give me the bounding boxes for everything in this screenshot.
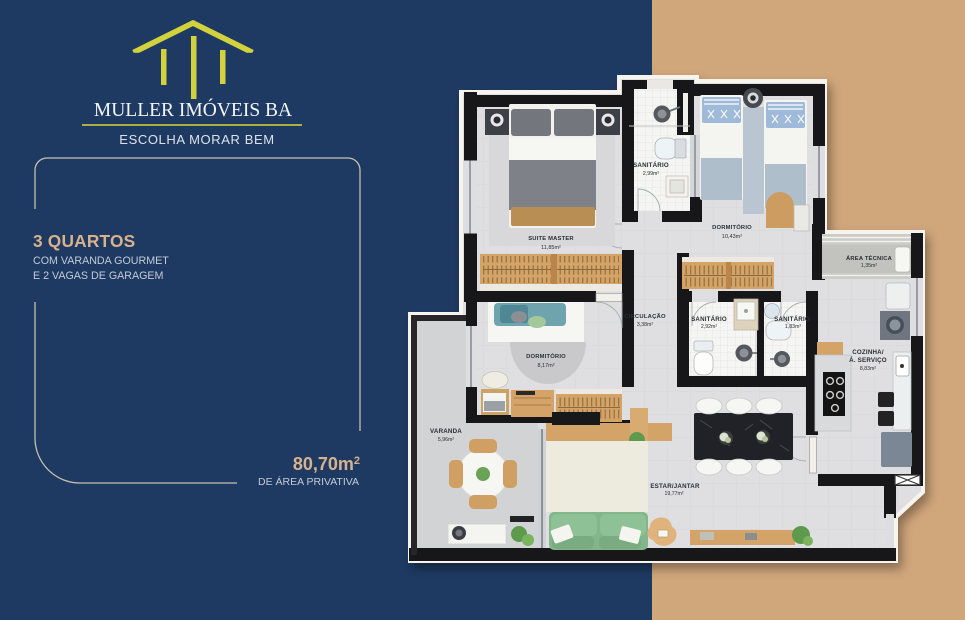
svg-text:8,17m²: 8,17m² [537, 363, 554, 369]
svg-text:DORMITÓRIO: DORMITÓRIO [526, 352, 566, 360]
svg-text:3,38m²: 3,38m² [637, 322, 653, 328]
svg-text:SUITE MASTER: SUITE MASTER [528, 236, 574, 242]
svg-text:1,35m²: 1,35m² [861, 263, 877, 269]
svg-text:VARANDA: VARANDA [430, 428, 462, 435]
svg-text:DORMITÓRIO: DORMITÓRIO [712, 223, 752, 231]
svg-text:SANITÁRIO: SANITÁRIO [774, 316, 810, 323]
svg-text:COZINHA/: COZINHA/ [852, 349, 884, 356]
svg-text:11,85m²: 11,85m² [541, 245, 561, 251]
svg-text:SANITÁRIO: SANITÁRIO [691, 316, 727, 323]
svg-text:ESTAR/JANTAR: ESTAR/JANTAR [650, 483, 700, 490]
svg-text:2,99m²: 2,99m² [643, 171, 659, 177]
svg-text:CIRCULAÇÃO: CIRCULAÇÃO [624, 313, 666, 320]
svg-text:19,77m²: 19,77m² [664, 491, 683, 497]
svg-text:8,83m²: 8,83m² [860, 366, 876, 372]
svg-text:10,43m²: 10,43m² [722, 234, 742, 240]
svg-text:1,83m²: 1,83m² [785, 324, 801, 330]
svg-text:5,96m²: 5,96m² [438, 437, 454, 443]
svg-text:2,92m²: 2,92m² [701, 324, 717, 330]
svg-text:ÁREA TÉCNICA: ÁREA TÉCNICA [846, 254, 893, 262]
svg-text:SANITÁRIO: SANITÁRIO [633, 162, 669, 169]
svg-text:Á. SERVIÇO: Á. SERVIÇO [849, 357, 887, 364]
